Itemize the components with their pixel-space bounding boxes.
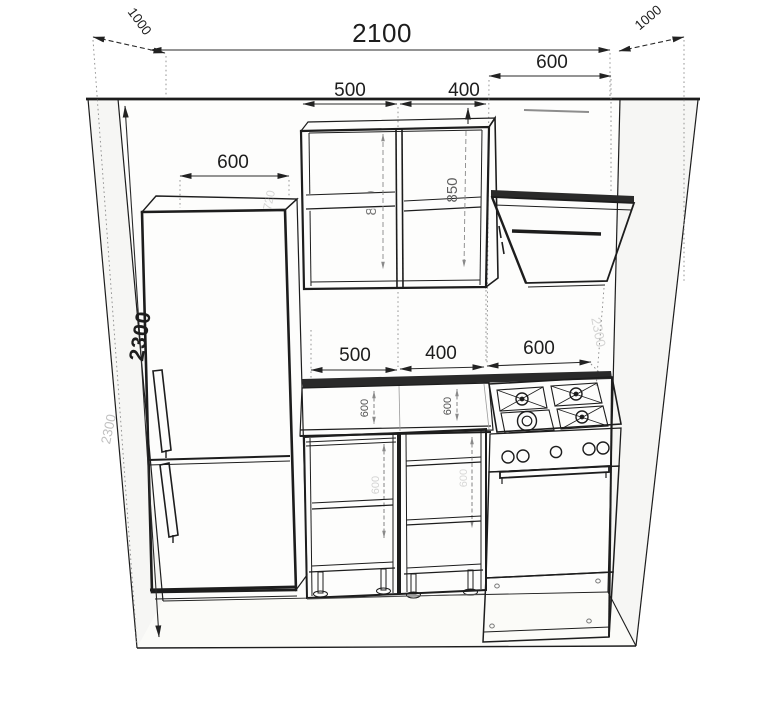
dim-upper-right-height-label: 850: [444, 177, 461, 202]
dim-stove-width-label: 600: [523, 338, 555, 359]
dim-depth-left: 1000: [93, 5, 165, 53]
burner-front-right-cap: [580, 415, 585, 420]
dim-counter-depth-a: 600: [359, 399, 371, 417]
dim-room-width-label: 2100: [352, 18, 412, 48]
dim-wall-height-ghost-left: 2300: [98, 413, 119, 446]
dim-counter-depth-b: 600: [442, 397, 454, 415]
wall-cabinet-divider-b: [402, 129, 403, 288]
kitchen-drawing-canvas: 850 850 600 600: [0, 0, 774, 706]
kitchen-drawing: 850 850 600 600: [0, 0, 774, 706]
dim-base-mid-width-label: 400: [425, 343, 457, 364]
wall-cabinet-divider-a: [396, 129, 397, 288]
dim-hood-width-label: 600: [536, 52, 568, 73]
dim-fridge-width-label: 600: [217, 152, 249, 173]
burner-back-right-cap: [574, 392, 579, 397]
dim-base-inner-a: 600: [370, 476, 382, 494]
right-wall: [608, 99, 698, 646]
dim-depth-right: 1000: [619, 2, 684, 51]
dim-depth-left-label: 1000: [125, 5, 155, 38]
dim-room-width: 2100: [150, 18, 610, 50]
dim-upper-left-width-label: 500: [334, 80, 366, 101]
burner-back-left-cap: [520, 397, 525, 402]
dim-base-inner-b: 600: [458, 469, 470, 487]
dim-depth-right-label: 1000: [632, 2, 665, 33]
dim-base-left-width-label: 500: [339, 345, 371, 366]
dim-hood-width: 600: [489, 52, 611, 76]
dim-upper-right-width-label: 400: [448, 80, 480, 101]
dim-line-1000-right: [619, 37, 684, 51]
dim-line-1000-left: [93, 37, 165, 53]
